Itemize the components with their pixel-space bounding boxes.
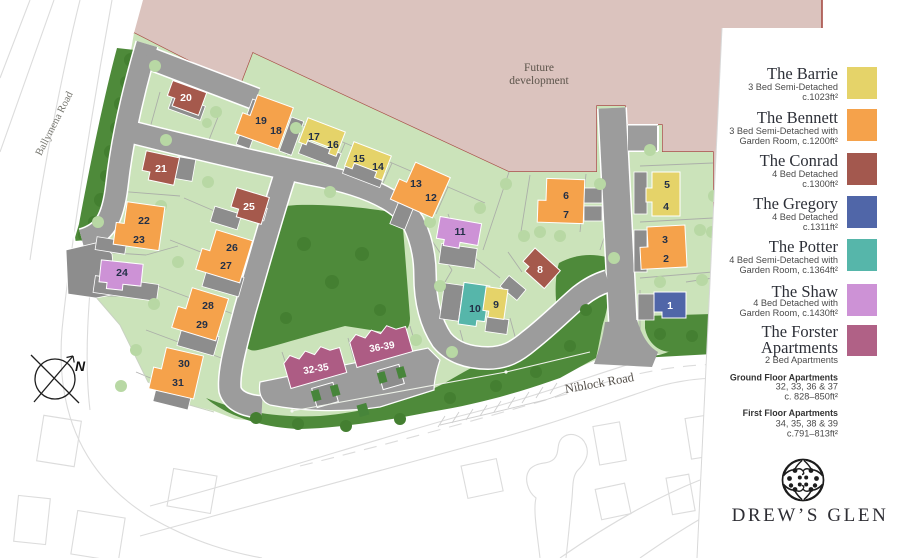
svg-text:19: 19 — [255, 115, 267, 127]
svg-text:The Potter: The Potter — [769, 237, 839, 256]
svg-text:18: 18 — [270, 125, 282, 137]
svg-text:The Barrie: The Barrie — [767, 64, 838, 83]
svg-text:11: 11 — [454, 226, 465, 238]
svg-text:The Conrad: The Conrad — [760, 151, 839, 170]
svg-text:14: 14 — [372, 161, 384, 173]
svg-text:4 Bed Detached: 4 Bed Detached — [772, 212, 838, 222]
svg-text:c.1311ft²: c.1311ft² — [803, 222, 838, 232]
svg-text:24: 24 — [116, 267, 128, 279]
svg-text:Garden Room, c.1364ft²: Garden Room, c.1364ft² — [739, 265, 838, 275]
svg-text:The Gregory: The Gregory — [753, 194, 839, 213]
svg-text:3 Bed Semi-Detached with: 3 Bed Semi-Detached with — [729, 126, 838, 136]
svg-text:28: 28 — [202, 300, 214, 312]
svg-text:21: 21 — [155, 163, 167, 175]
svg-text:Future: Future — [524, 62, 554, 74]
svg-text:31: 31 — [172, 377, 184, 389]
svg-text:16: 16 — [327, 139, 339, 151]
svg-text:5: 5 — [664, 179, 670, 191]
svg-text:c.1300ft²: c.1300ft² — [802, 179, 838, 189]
svg-text:12: 12 — [425, 192, 437, 204]
svg-text:N: N — [75, 358, 86, 374]
svg-text:32, 33, 36 & 37: 32, 33, 36 & 37 — [776, 382, 838, 392]
svg-text:2: 2 — [663, 253, 669, 265]
svg-text:6: 6 — [563, 190, 569, 202]
svg-text:4 Bed Semi-Detached with: 4 Bed Semi-Detached with — [729, 255, 838, 265]
svg-text:development: development — [509, 75, 569, 87]
svg-text:4 Bed Detached with: 4 Bed Detached with — [753, 298, 838, 308]
svg-text:20: 20 — [180, 92, 192, 104]
svg-text:26: 26 — [226, 242, 238, 254]
svg-text:4: 4 — [663, 201, 669, 213]
svg-text:c. 828–850ft²: c. 828–850ft² — [784, 392, 838, 402]
svg-text:DREW’S GLEN: DREW’S GLEN — [732, 505, 889, 526]
svg-text:c.791–813ft²: c.791–813ft² — [787, 429, 838, 439]
svg-text:c.1023ft²: c.1023ft² — [802, 92, 838, 102]
svg-text:22: 22 — [138, 215, 150, 227]
svg-text:3: 3 — [662, 234, 668, 246]
svg-text:23: 23 — [133, 234, 145, 246]
svg-text:8: 8 — [537, 264, 543, 276]
svg-text:30: 30 — [178, 358, 190, 370]
svg-text:10: 10 — [469, 303, 481, 315]
svg-text:2 Bed Apartments: 2 Bed Apartments — [765, 355, 838, 365]
svg-text:34, 35, 38 & 39: 34, 35, 38 & 39 — [776, 419, 838, 429]
svg-text:15: 15 — [353, 153, 365, 165]
svg-text:1: 1 — [667, 300, 673, 312]
svg-text:13: 13 — [410, 178, 422, 190]
svg-text:The Bennett: The Bennett — [757, 108, 839, 127]
svg-text:7: 7 — [563, 209, 569, 221]
svg-text:25: 25 — [243, 201, 255, 213]
svg-text:17: 17 — [308, 131, 320, 143]
svg-text:Garden Room, c.1430ft²: Garden Room, c.1430ft² — [739, 308, 838, 318]
svg-text:3 Bed Semi-Detached: 3 Bed Semi-Detached — [748, 82, 838, 92]
svg-text:29: 29 — [196, 319, 208, 331]
svg-text:9: 9 — [493, 299, 499, 311]
svg-text:4 Bed Detached: 4 Bed Detached — [772, 169, 838, 179]
svg-text:27: 27 — [220, 260, 232, 272]
svg-text:Garden Room, c.1200ft²: Garden Room, c.1200ft² — [739, 136, 838, 146]
svg-text:First Floor Apartments: First Floor Apartments — [743, 408, 838, 418]
